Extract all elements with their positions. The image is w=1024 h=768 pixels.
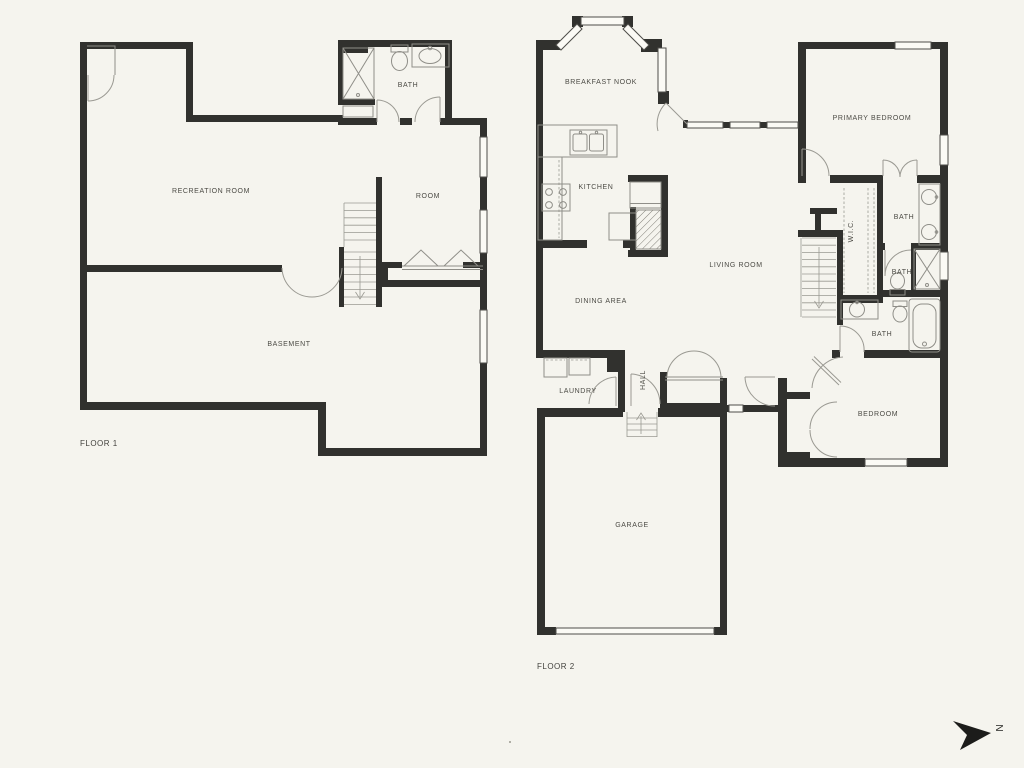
- floor2-title: FLOOR 2: [537, 662, 575, 671]
- room-label-kitchen: KITCHEN: [579, 184, 614, 191]
- room-label-recreation-room: RECREATION ROOM: [172, 188, 250, 195]
- door-arc: [840, 326, 864, 352]
- room-label-bath-floor1: BATH: [398, 82, 419, 89]
- closet-door-arc: [694, 351, 721, 378]
- page-mark: [509, 741, 511, 743]
- window: [658, 48, 666, 92]
- bifold-door-icon: [404, 250, 438, 266]
- sink-icon: [850, 302, 865, 317]
- bath-closet: [343, 106, 373, 117]
- door-arc: [745, 377, 775, 406]
- window: [480, 137, 487, 177]
- room-label-primary-bedroom: PRIMARY BEDROOM: [833, 115, 912, 122]
- floorplan-canvas: RECREATION ROOM ROOM BASEMENT BATH FLOOR…: [0, 0, 1024, 768]
- window: [729, 405, 743, 412]
- window: [480, 210, 487, 253]
- floorplan-page: RECREATION ROOM ROOM BASEMENT BATH FLOOR…: [0, 0, 1024, 768]
- room-label-room: ROOM: [416, 193, 440, 200]
- door-arc: [812, 357, 843, 388]
- room-label-bath-mid: BATH: [892, 269, 913, 276]
- room-label-dining-area: DINING AREA: [575, 298, 627, 305]
- door-arc: [312, 268, 342, 297]
- room-label-bedroom: BEDROOM: [858, 411, 898, 418]
- entry-alcove: [87, 46, 115, 101]
- closet-door-arc: [667, 351, 694, 378]
- lower-bath-fixtures: [840, 299, 940, 352]
- door-arc: [900, 160, 917, 177]
- room-label-bath-lower: BATH: [872, 331, 893, 338]
- sink-icon: [922, 190, 937, 205]
- primary-bath-fixtures: [919, 184, 940, 245]
- bedroom-doors: [810, 357, 843, 458]
- door-arc: [883, 160, 900, 177]
- window: [940, 252, 948, 280]
- north-arrow-icon: N: [953, 721, 1004, 750]
- bathtub-icon: [909, 299, 940, 352]
- primary-suite-doors: [802, 149, 917, 177]
- garage-steps: [627, 412, 657, 437]
- bay-window: [623, 24, 649, 50]
- floor2-windows: [556, 17, 948, 634]
- nook-corner-door: [657, 103, 687, 131]
- door-leaf: [812, 357, 841, 386]
- stairs-floor1: [344, 203, 376, 305]
- room-label-laundry: LAUNDRY: [559, 388, 597, 395]
- room-label-wic: W.I.C.: [848, 220, 855, 243]
- window: [687, 122, 723, 128]
- floor1-bath-fixtures: [343, 44, 449, 122]
- room-label-living-room: LIVING ROOM: [709, 262, 762, 269]
- washer-icon: [544, 358, 567, 377]
- floor2-walls: [536, 16, 948, 635]
- closet-door-arc: [810, 402, 837, 429]
- window: [895, 42, 931, 49]
- dryer-icon: [569, 358, 590, 375]
- room-label-hall: HALL: [640, 370, 647, 390]
- window: [767, 122, 798, 128]
- door-arc: [377, 100, 399, 122]
- basement-double-door: [282, 268, 342, 297]
- door-arc: [802, 149, 829, 176]
- room-label-garage: GARAGE: [615, 522, 649, 529]
- window: [480, 310, 487, 363]
- floor1-windows: [480, 137, 487, 363]
- door-arc: [282, 268, 312, 297]
- room-label-basement: BASEMENT: [267, 341, 310, 348]
- door-arc: [88, 75, 114, 101]
- room-label-breakfast-nook: BREAKFAST NOOK: [565, 79, 637, 86]
- room-label-bath-primary: BATH: [894, 214, 915, 221]
- bay-window: [581, 17, 624, 25]
- window: [940, 135, 948, 165]
- north-label: N: [993, 724, 1004, 731]
- window: [730, 122, 760, 128]
- door-leaf: [666, 103, 687, 124]
- closet-door-arc: [810, 430, 837, 457]
- floor2-plan: BREAKFAST NOOK KITCHEN LIVING ROOM DININ…: [536, 16, 948, 671]
- window: [865, 459, 907, 466]
- pantry: [630, 182, 661, 208]
- bay-window: [556, 24, 582, 50]
- floor1-walls: [80, 40, 487, 456]
- garage-door: [556, 628, 714, 634]
- floor1-title: FLOOR 1: [80, 439, 118, 448]
- door-arc: [657, 103, 666, 131]
- sink-icon: [922, 225, 937, 240]
- laundry-fixtures: [544, 358, 590, 377]
- floor1-plan: RECREATION ROOM ROOM BASEMENT BATH FLOOR…: [80, 40, 487, 456]
- door-arc: [415, 97, 440, 122]
